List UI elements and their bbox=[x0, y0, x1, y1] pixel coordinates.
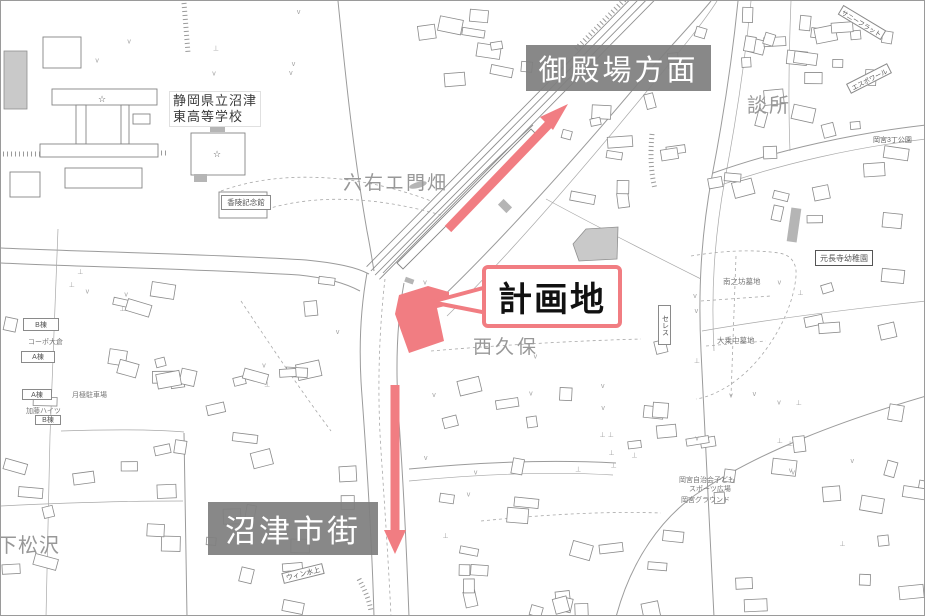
svg-text:⊥: ⊥ bbox=[631, 452, 637, 459]
label-okanomiya-ground: 岡宮グラウンド bbox=[681, 495, 730, 505]
school-name-line1: 静岡県立沼津 bbox=[173, 93, 257, 109]
svg-text:v: v bbox=[127, 39, 131, 46]
area-label-shimomatsuzawa: 下松沢 bbox=[0, 529, 60, 558]
svg-text:v: v bbox=[297, 9, 301, 16]
svg-text:v: v bbox=[601, 405, 605, 412]
railway-hatching bbox=[576, 1, 643, 49]
svg-text:v: v bbox=[467, 491, 471, 498]
area-label-rokuemonbata: 六右エ門畑 bbox=[343, 168, 448, 195]
planned-site-polygon bbox=[395, 286, 449, 353]
label-ceres: セレス bbox=[658, 305, 671, 345]
svg-text:v: v bbox=[777, 400, 781, 407]
svg-text:⊥: ⊥ bbox=[839, 541, 845, 548]
svg-text:v: v bbox=[729, 393, 733, 400]
svg-text:⊥: ⊥ bbox=[69, 282, 75, 289]
label-minaminobo-cemetery: 南之坊墓地 bbox=[723, 276, 761, 287]
label-sports-plaza-line2: スポーツ広場 bbox=[689, 484, 731, 494]
svg-text:⊥: ⊥ bbox=[442, 533, 448, 540]
svg-text:v: v bbox=[432, 392, 436, 399]
svg-text:⊥: ⊥ bbox=[694, 358, 700, 365]
label-okanomiya-park: 岡宮3丁公園 bbox=[873, 135, 912, 145]
svg-text:⊥: ⊥ bbox=[777, 438, 783, 445]
svg-text:v: v bbox=[289, 70, 293, 77]
planned-site-callout: 計画地 bbox=[482, 265, 622, 328]
direction-label-numazu: 沼津市街 bbox=[208, 502, 378, 555]
svg-text:⊥: ⊥ bbox=[119, 306, 125, 313]
svg-text:⊥: ⊥ bbox=[575, 467, 581, 474]
svg-text:⊥: ⊥ bbox=[611, 463, 617, 470]
arrow-to-gotemba-shaft bbox=[448, 123, 550, 229]
svg-text:⊥: ⊥ bbox=[787, 441, 793, 448]
svg-text:v: v bbox=[424, 455, 428, 462]
svg-text:⊥: ⊥ bbox=[213, 46, 219, 53]
label-koryo-kinenkan: 香陵記念館 bbox=[221, 195, 271, 210]
label-a-wing: A棟 bbox=[22, 389, 52, 400]
school-symbol: ☆ bbox=[213, 149, 221, 159]
svg-text:v: v bbox=[529, 390, 533, 397]
svg-text:v: v bbox=[95, 57, 99, 64]
svg-text:v: v bbox=[789, 467, 793, 474]
svg-text:v: v bbox=[601, 383, 605, 390]
svg-text:v: v bbox=[292, 61, 296, 68]
level-crossing bbox=[404, 277, 414, 285]
svg-text:v: v bbox=[124, 292, 128, 299]
svg-text:⊥: ⊥ bbox=[608, 432, 614, 439]
label-monthly-parking: 月極駐車場 bbox=[72, 390, 107, 400]
station-platform bbox=[397, 129, 537, 269]
label-a-wing: A棟 bbox=[21, 351, 55, 363]
svg-text:v: v bbox=[423, 279, 427, 286]
svg-text:v: v bbox=[695, 435, 699, 442]
map-canvas: ☆ ☆ v⊥vvv⊥⊥v⊥v⊥vv⊥vvvv⊥v⊥vvvv⊥vvvvvvvv⊥v… bbox=[0, 0, 925, 616]
area-label-danjo: 談所 bbox=[747, 89, 791, 118]
svg-text:v: v bbox=[693, 293, 697, 300]
svg-text:v: v bbox=[336, 329, 340, 336]
svg-text:⊥: ⊥ bbox=[797, 290, 803, 297]
svg-text:v: v bbox=[262, 362, 266, 369]
school-name-label: 静岡県立沼津 東高等学校 bbox=[169, 91, 261, 127]
label-daijo-cemetery: 大乗中墓地 bbox=[717, 335, 755, 346]
svg-text:⊥: ⊥ bbox=[600, 432, 606, 439]
label-genchoji-kindergarten: 元長寺幼稚園 bbox=[815, 250, 873, 266]
svg-text:⊥: ⊥ bbox=[608, 450, 614, 457]
svg-text:v: v bbox=[695, 308, 699, 315]
label-b-wing: B棟 bbox=[23, 318, 59, 331]
svg-text:v: v bbox=[778, 279, 782, 286]
svg-text:v: v bbox=[86, 289, 90, 296]
label-corpo-okura: コーポ大倉 bbox=[28, 337, 63, 347]
svg-text:v: v bbox=[474, 470, 478, 477]
svg-text:v: v bbox=[851, 458, 855, 465]
svg-text:⊥: ⊥ bbox=[796, 400, 802, 407]
svg-text:⊥: ⊥ bbox=[77, 269, 83, 276]
school-name-line2: 東高等学校 bbox=[173, 109, 257, 125]
svg-text:v: v bbox=[753, 391, 757, 398]
svg-text:⊥: ⊥ bbox=[264, 381, 270, 388]
label-b-wing: B棟 bbox=[35, 415, 61, 425]
area-label-nishikubo: 西久保 bbox=[473, 332, 539, 359]
cemetery-paths bbox=[691, 251, 796, 399]
svg-text:v: v bbox=[212, 70, 216, 77]
station-side-building bbox=[573, 227, 618, 261]
direction-label-gotemba: 御殿場方面 bbox=[526, 45, 711, 91]
school-symbol: ☆ bbox=[98, 94, 106, 104]
